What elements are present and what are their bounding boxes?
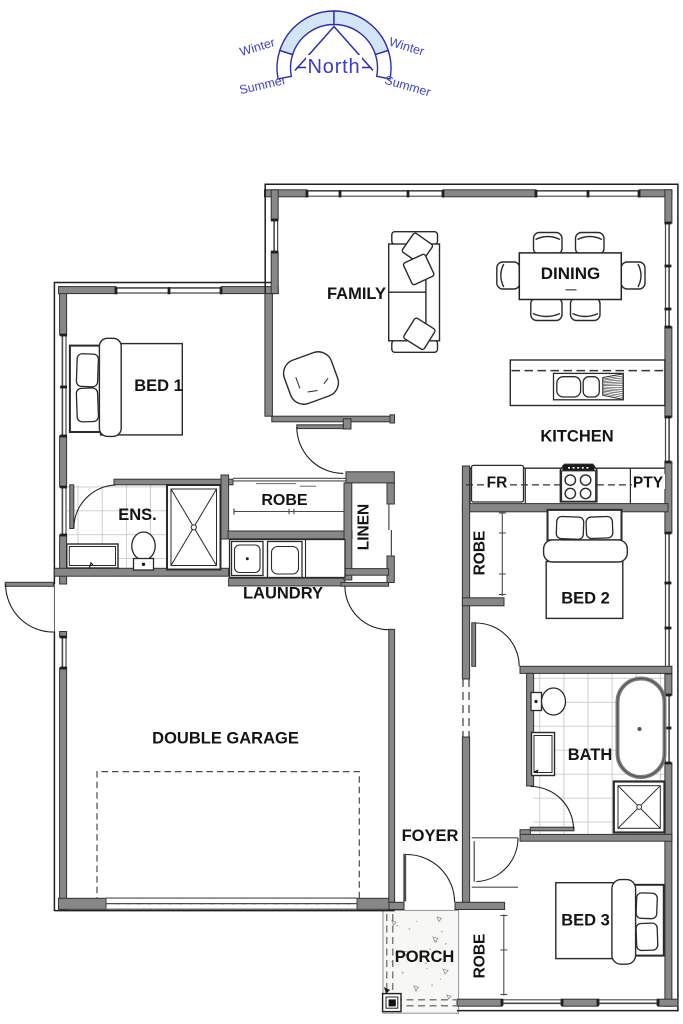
svg-text:FR: FR [487,475,508,492]
svg-text:PTY: PTY [633,475,664,492]
svg-text:BATH: BATH [568,746,613,764]
svg-text:FAMILY: FAMILY [327,285,386,303]
svg-text:ROBE: ROBE [261,492,308,509]
svg-text:ENS.: ENS. [118,506,157,524]
svg-text:ROBE: ROBE [472,531,489,576]
svg-text:FOYER: FOYER [402,827,459,845]
svg-text:PORCH: PORCH [395,948,455,966]
svg-text:North: North [308,56,361,78]
svg-text:ROBE: ROBE [472,934,489,979]
svg-text:BED 3: BED 3 [561,912,610,930]
svg-text:LINEN: LINEN [356,504,373,551]
svg-text:KITCHEN: KITCHEN [540,428,613,446]
svg-text:BED 2: BED 2 [561,589,610,607]
svg-text:DINING: DINING [541,264,601,283]
svg-text:BED 1: BED 1 [134,377,183,395]
svg-text:DOUBLE GARAGE: DOUBLE GARAGE [152,730,299,748]
svg-text:LAUNDRY: LAUNDRY [243,585,323,603]
